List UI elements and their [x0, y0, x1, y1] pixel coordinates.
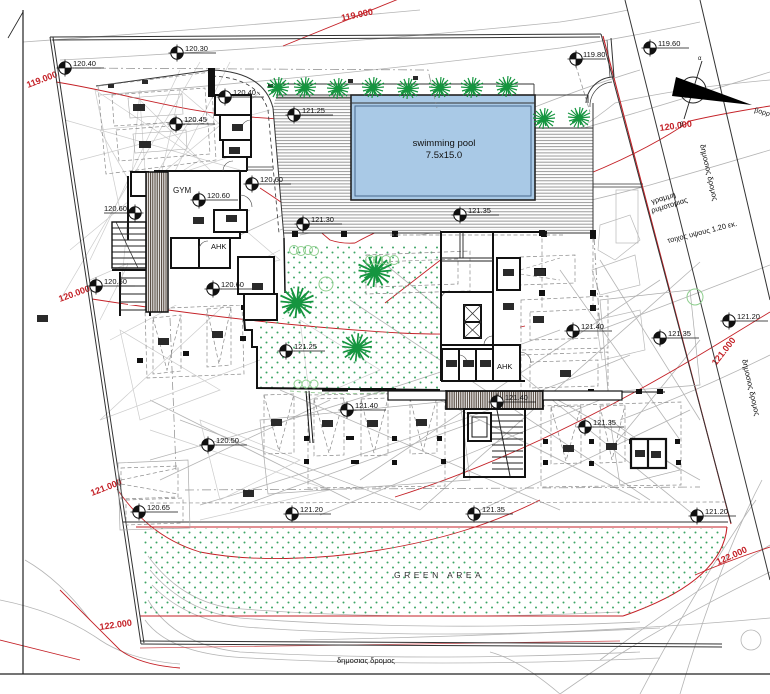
- svg-text:β: β: [680, 122, 684, 128]
- svg-text:AHK: AHK: [497, 362, 512, 371]
- svg-text:swimming pool: swimming pool: [413, 138, 476, 149]
- svg-text:121.40: 121.40: [581, 322, 604, 331]
- svg-text:119.80: 119.80: [583, 50, 605, 59]
- svg-text:121.20: 121.20: [300, 505, 323, 514]
- svg-text:121.40: 121.40: [355, 401, 378, 410]
- svg-text:120.50: 120.50: [104, 277, 127, 286]
- svg-text:120.60: 120.60: [104, 204, 127, 213]
- svg-text:121.25: 121.25: [302, 106, 325, 115]
- svg-text:121.30: 121.30: [311, 215, 334, 224]
- svg-text:121.35: 121.35: [668, 329, 691, 338]
- svg-text:121.35: 121.35: [482, 505, 505, 514]
- svg-text:AHK: AHK: [211, 242, 226, 251]
- svg-text:120.60: 120.60: [207, 191, 230, 200]
- svg-text:GREEN AREA: GREEN AREA: [394, 570, 484, 580]
- svg-text:121.35: 121.35: [593, 418, 616, 427]
- svg-text:120.40: 120.40: [73, 59, 96, 68]
- svg-text:δημοσιας δρομος: δημοσιας δρομος: [337, 656, 395, 665]
- svg-text:120.45: 120.45: [184, 115, 207, 124]
- svg-text:121.25: 121.25: [294, 342, 317, 351]
- svg-text:119.60: 119.60: [658, 39, 680, 48]
- svg-text:GYM: GYM: [173, 186, 192, 195]
- svg-text:121.35: 121.35: [468, 206, 491, 215]
- svg-text:120.40: 120.40: [233, 88, 256, 97]
- svg-text:120.60: 120.60: [221, 280, 244, 289]
- svg-text:7.5x15.0: 7.5x15.0: [426, 150, 462, 161]
- svg-text:121.20: 121.20: [705, 507, 728, 516]
- svg-text:α: α: [698, 56, 702, 62]
- svg-text:121.40: 121.40: [505, 393, 528, 402]
- svg-text:120.65: 120.65: [147, 503, 170, 512]
- svg-text:121.20: 121.20: [737, 312, 760, 321]
- svg-text:120.50: 120.50: [216, 436, 239, 445]
- svg-text:120.30: 120.30: [185, 44, 208, 53]
- svg-text:120.60: 120.60: [260, 175, 283, 184]
